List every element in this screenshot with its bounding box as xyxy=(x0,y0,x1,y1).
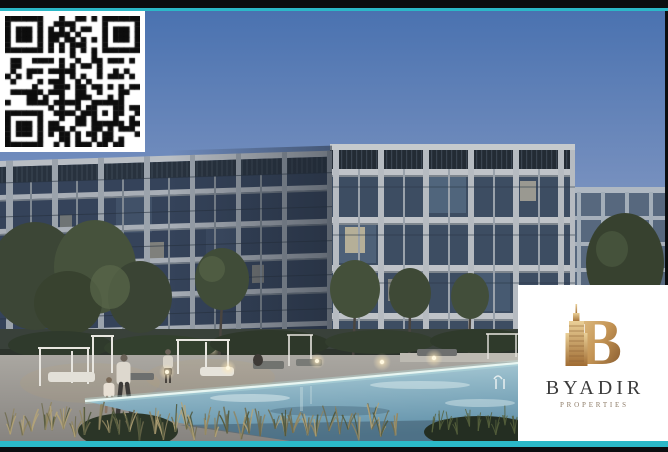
real-estate-flyer: B BYADIR PROPERTIES xyxy=(0,0,668,452)
brand-logo-card: B BYADIR PROPERTIES xyxy=(518,285,668,441)
byadir-logo-icon: B xyxy=(561,298,625,376)
bottom-black-bar xyxy=(0,447,668,452)
top-black-bar xyxy=(0,0,668,8)
brand-name: BYADIR xyxy=(546,378,644,398)
qr-code-pattern xyxy=(5,16,140,147)
brand-tagline: PROPERTIES xyxy=(560,402,629,409)
qr-code xyxy=(0,11,145,152)
